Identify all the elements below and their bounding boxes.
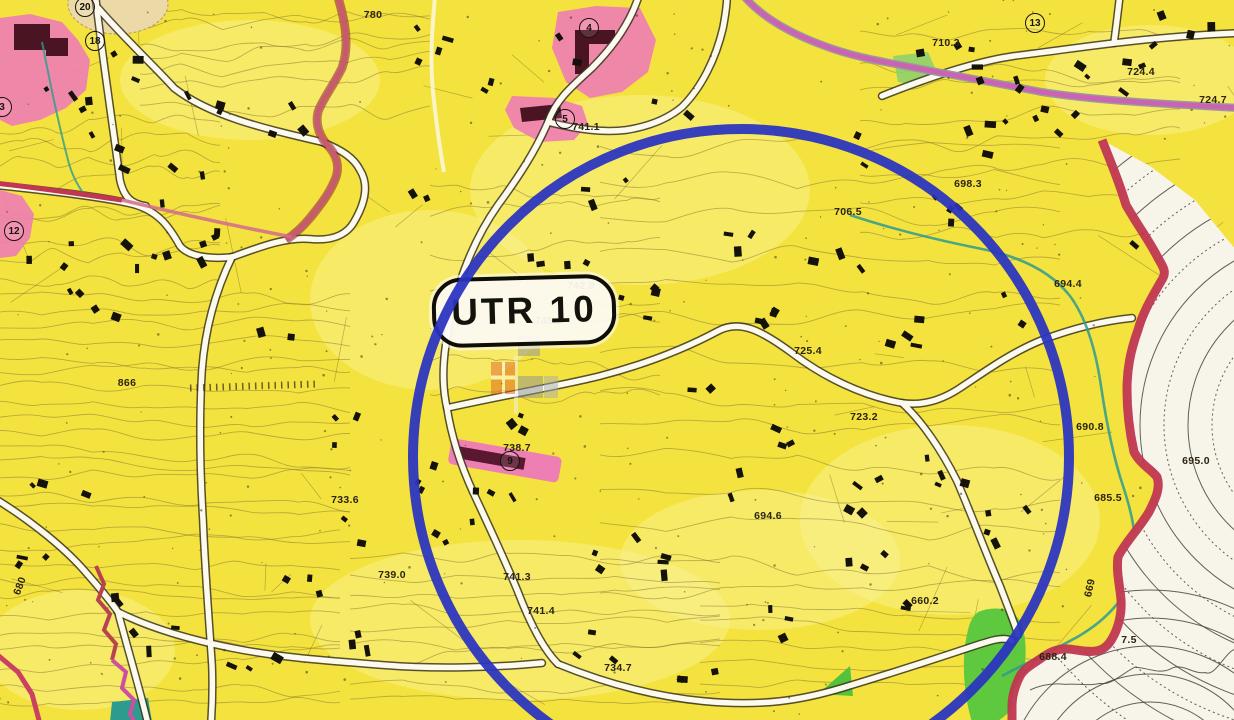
map-artwork	[0, 0, 1234, 720]
watermark-shape	[544, 376, 558, 398]
planning-map-canvas: 780710.3724.4724.7741.1742.0745.3706.569…	[0, 0, 1234, 720]
light-terrain-patches	[0, 20, 1234, 710]
watermark-logo	[488, 336, 558, 414]
utr-zone-label: UTR 10	[451, 288, 598, 334]
watermark-shape	[491, 362, 515, 394]
utr-zone-badge: UTR 10	[431, 274, 617, 349]
watermark-shape	[518, 376, 543, 398]
